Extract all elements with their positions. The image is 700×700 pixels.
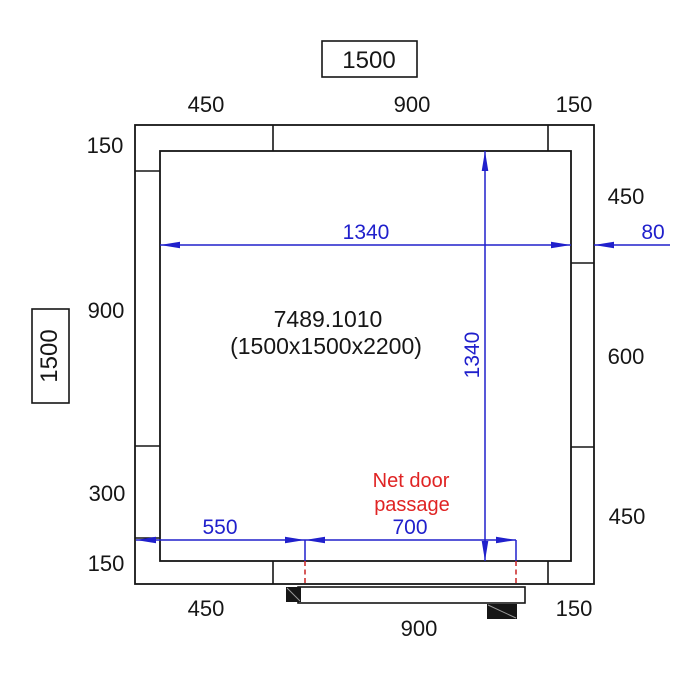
arrow-right-icon xyxy=(496,537,516,544)
door-note: Net door passage xyxy=(373,470,450,516)
panel-dims-right: 450 600 450 xyxy=(608,184,646,529)
dim-interior-depth: 1340 xyxy=(461,151,488,561)
top-dim-3: 150 xyxy=(556,92,593,117)
right-dim-3: 450 xyxy=(609,504,646,529)
dim-wall-thickness: 80 xyxy=(594,221,670,248)
left-dim-4: 150 xyxy=(88,551,125,576)
arrow-left-icon xyxy=(305,537,325,544)
product-article: 7489.1010 xyxy=(274,306,383,332)
overall-depth-box: 1500 xyxy=(32,309,69,403)
arrow-down-icon xyxy=(482,541,489,561)
overall-width-box: 1500 xyxy=(322,41,417,77)
plan-canvas: 1340 80 1340 550 700 Net door passage 15… xyxy=(0,0,700,700)
door-offset-label: 550 xyxy=(202,516,237,539)
panel-dims-top: 450 900 150 xyxy=(188,92,593,117)
top-dim-1: 450 xyxy=(188,92,225,117)
interior-depth-label: 1340 xyxy=(461,332,484,379)
arrow-left-icon xyxy=(594,242,614,249)
bottom-dim-3: 150 xyxy=(556,596,593,621)
arrow-up-icon xyxy=(482,151,489,171)
bottom-dim-2: 900 xyxy=(401,616,438,641)
overall-depth-label: 1500 xyxy=(36,329,63,382)
left-dim-2: 900 xyxy=(88,298,125,323)
arrow-right-icon xyxy=(551,242,571,249)
left-dim-1: 150 xyxy=(87,133,124,158)
door-passage-label: 700 xyxy=(392,516,427,539)
door-note-line1: Net door xyxy=(373,470,450,492)
overall-width-label: 1500 xyxy=(342,47,395,74)
right-dim-1: 450 xyxy=(608,184,645,209)
right-dim-2: 600 xyxy=(608,344,645,369)
door-note-line2: passage xyxy=(374,494,450,516)
wall-thickness-label: 80 xyxy=(641,221,664,244)
bottom-dim-1: 450 xyxy=(188,596,225,621)
panel-dims-left: 150 900 300 150 xyxy=(87,133,126,576)
arrow-right-icon xyxy=(285,537,305,544)
product-info: 7489.1010 (1500x1500x2200) xyxy=(230,306,422,359)
door-leaf xyxy=(298,587,525,603)
arrow-left-icon xyxy=(160,242,180,249)
top-dim-2: 900 xyxy=(394,92,431,117)
cold-room-floor-plan-drawing: 1340 80 1340 550 700 Net door passage 15… xyxy=(0,0,700,700)
product-size: (1500x1500x2200) xyxy=(230,333,422,359)
dim-door-offset: 550 xyxy=(136,516,305,543)
left-dim-3: 300 xyxy=(89,481,126,506)
door xyxy=(286,561,525,619)
interior-width-label: 1340 xyxy=(343,221,390,244)
dim-interior-width: 1340 xyxy=(160,221,571,248)
